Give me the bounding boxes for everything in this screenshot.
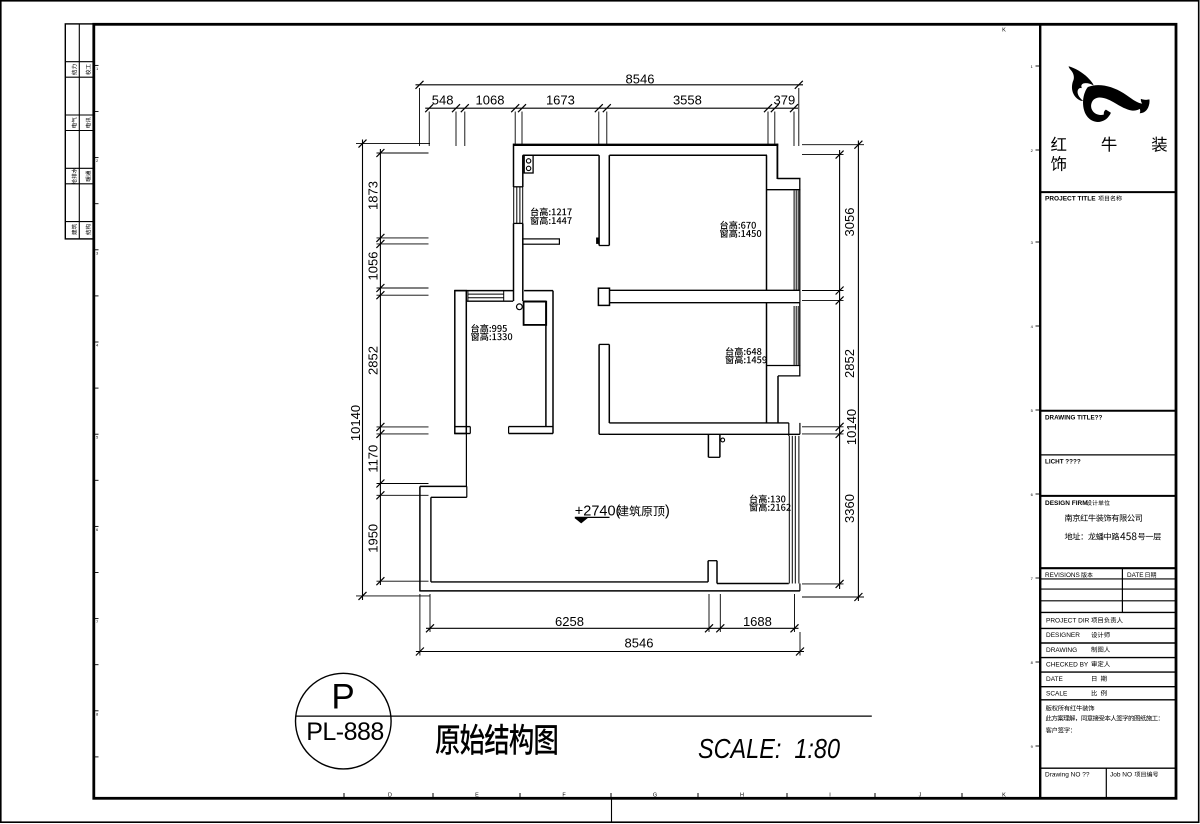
svg-text:K: K [1002,793,1006,799]
svg-text:H: H [740,793,744,799]
svg-text:G: G [653,793,657,799]
svg-text:8546: 8546 [626,72,655,87]
svg-text:DESIGNER: DESIGNER [1046,632,1080,639]
svg-text:1056: 1056 [366,252,381,281]
svg-text:1950: 1950 [366,524,381,553]
svg-text:2852: 2852 [366,346,381,375]
svg-text:1068: 1068 [476,92,505,107]
svg-text:1873: 1873 [366,181,381,210]
svg-text:PROJECT TITLE: PROJECT TITLE [1045,196,1096,203]
svg-text:E: E [475,793,479,799]
svg-text:2852: 2852 [842,349,857,378]
svg-text:10140: 10140 [844,409,859,445]
svg-text:Job NO: Job NO [1110,772,1132,779]
svg-text:3056: 3056 [842,208,857,237]
svg-text:PL-888: PL-888 [306,718,384,746]
svg-text:D: D [388,793,392,799]
svg-text:P: P [331,678,354,717]
svg-text:1673: 1673 [546,92,575,107]
svg-text:1688: 1688 [743,614,772,629]
svg-text:J: J [919,793,922,799]
svg-text:DRAWING: DRAWING [1046,647,1077,654]
svg-text:SCALE: SCALE [1046,690,1068,697]
svg-text:SCALE: 1:80: SCALE: 1:80 [698,733,840,764]
svg-text:): ) [665,504,670,520]
svg-text:3360: 3360 [842,494,857,523]
svg-text:CHECKED BY: CHECKED BY [1046,661,1089,668]
svg-text:PROJECT DIR: PROJECT DIR [1046,618,1090,625]
svg-text:DRAWING TITLE??: DRAWING TITLE?? [1045,415,1103,422]
svg-text:379: 379 [774,92,796,107]
svg-text:6258: 6258 [555,614,584,629]
svg-text:K: K [1002,28,1006,34]
svg-text:10140: 10140 [348,405,363,441]
svg-text:DATE: DATE [1046,676,1064,683]
svg-text:1170: 1170 [366,445,381,473]
svg-text:DESIGN FIRM: DESIGN FIRM [1045,500,1088,507]
svg-text:548: 548 [432,92,454,107]
svg-text:Drawing NO ??: Drawing NO ?? [1045,772,1090,779]
svg-text:8546: 8546 [625,636,654,651]
svg-text:LICHT ????: LICHT ???? [1045,459,1081,466]
svg-text:DATE: DATE [1127,572,1144,579]
svg-text:REVISIONS: REVISIONS [1045,572,1080,579]
svg-text:3558: 3558 [673,92,702,107]
